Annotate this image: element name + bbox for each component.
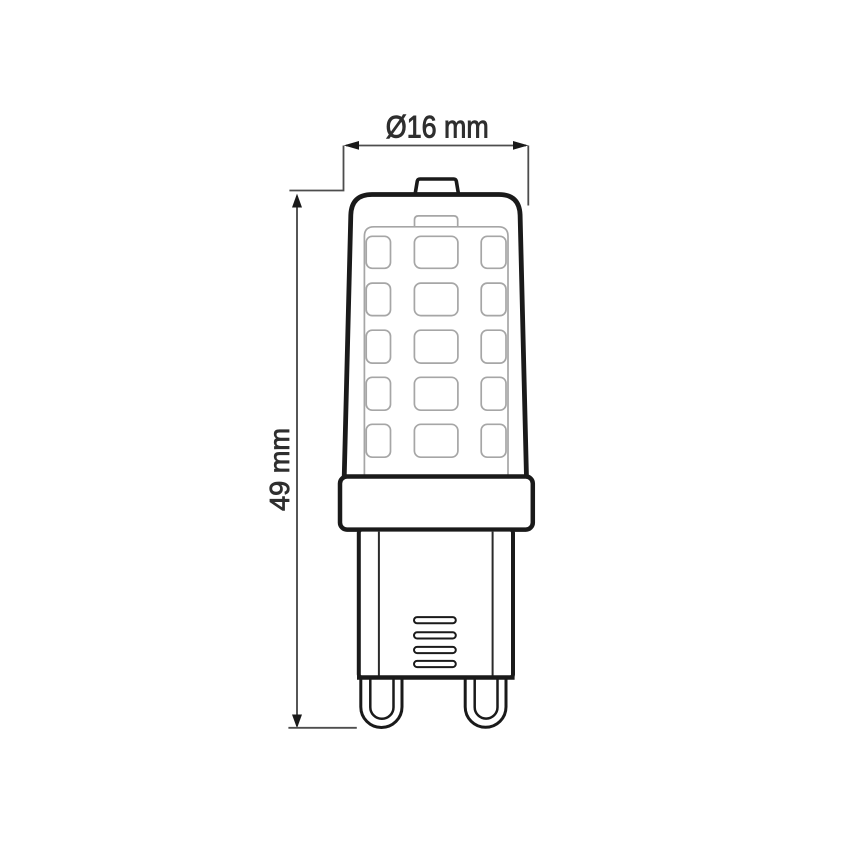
svg-text:Ø16 mm: Ø16 mm <box>386 109 489 145</box>
svg-text:49 mm: 49 mm <box>264 428 295 511</box>
